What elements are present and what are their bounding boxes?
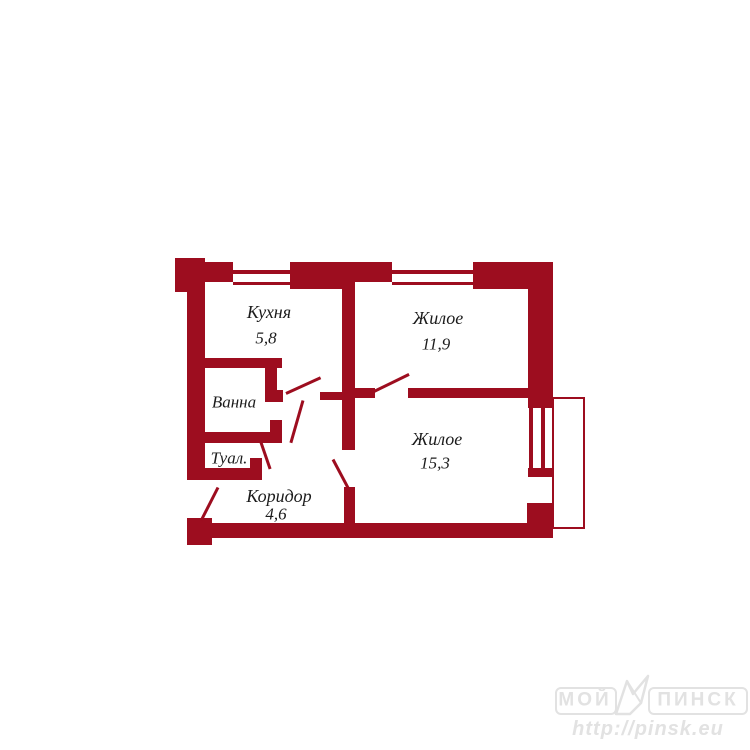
wall-right [528, 262, 553, 408]
watermark-url: http://pinsk.eu [572, 719, 724, 739]
window-kitchen [233, 270, 290, 274]
door-living2 [332, 459, 351, 490]
wall-toilet-bottom [187, 468, 250, 480]
wall-toilet-jamb [250, 458, 262, 480]
room-area-living1: 11,9 [422, 336, 451, 353]
door-living1 [373, 373, 409, 393]
room-label-bath: Ванна [212, 394, 256, 411]
wall-between-living [408, 388, 528, 398]
window-living1 [392, 270, 473, 274]
watermark-title-left: МОЙ [558, 691, 611, 710]
room-area-kitchen: 5,8 [255, 330, 276, 347]
window-living2 [541, 408, 545, 468]
room-label-kitchen: Кухня [247, 303, 291, 321]
wall-ledge [473, 282, 528, 289]
wall-bottom [187, 523, 553, 538]
window-sill [528, 468, 553, 477]
wall-central [342, 282, 355, 450]
room-area-living2: 15,3 [420, 455, 450, 472]
apartment-floorplan: Кухня 5,8 Жилое 11,9 Жилое 15,3 Ванна Ту… [0, 0, 750, 750]
watermark-title-right: ПИНСК [657, 691, 738, 710]
window-sill [233, 282, 290, 285]
wall-kitchen-stub [320, 392, 342, 400]
wall-bath-right [265, 368, 277, 390]
room-label-living2: Жилое [412, 430, 463, 448]
wall-corner-bottom-right [527, 503, 553, 538]
balcony-outline [552, 397, 585, 529]
wall-bath-bottom [199, 432, 282, 443]
floorplan-page: Кухня 5,8 Жилое 11,9 Жилое 15,3 Ванна Ту… [0, 0, 750, 750]
wall-top-segment [290, 262, 392, 282]
door-bath [289, 400, 304, 443]
room-area-corridor: 4,6 [265, 506, 286, 523]
wall-bath-top [199, 358, 282, 368]
window-living2 [529, 408, 533, 468]
wall-between-living [355, 388, 375, 398]
wall-central-lower [344, 487, 355, 523]
door-entry [200, 487, 219, 521]
room-label-living1: Жилое [413, 309, 464, 327]
bird-icon [608, 673, 654, 717]
wall-bath-jamb [265, 390, 283, 402]
room-label-corridor: Коридор [246, 487, 311, 505]
window-sill [392, 282, 473, 285]
room-label-toilet: Туал. [211, 450, 248, 467]
wall-left [187, 282, 205, 480]
wall-ledge [290, 282, 342, 289]
door-kitchen [285, 376, 321, 394]
